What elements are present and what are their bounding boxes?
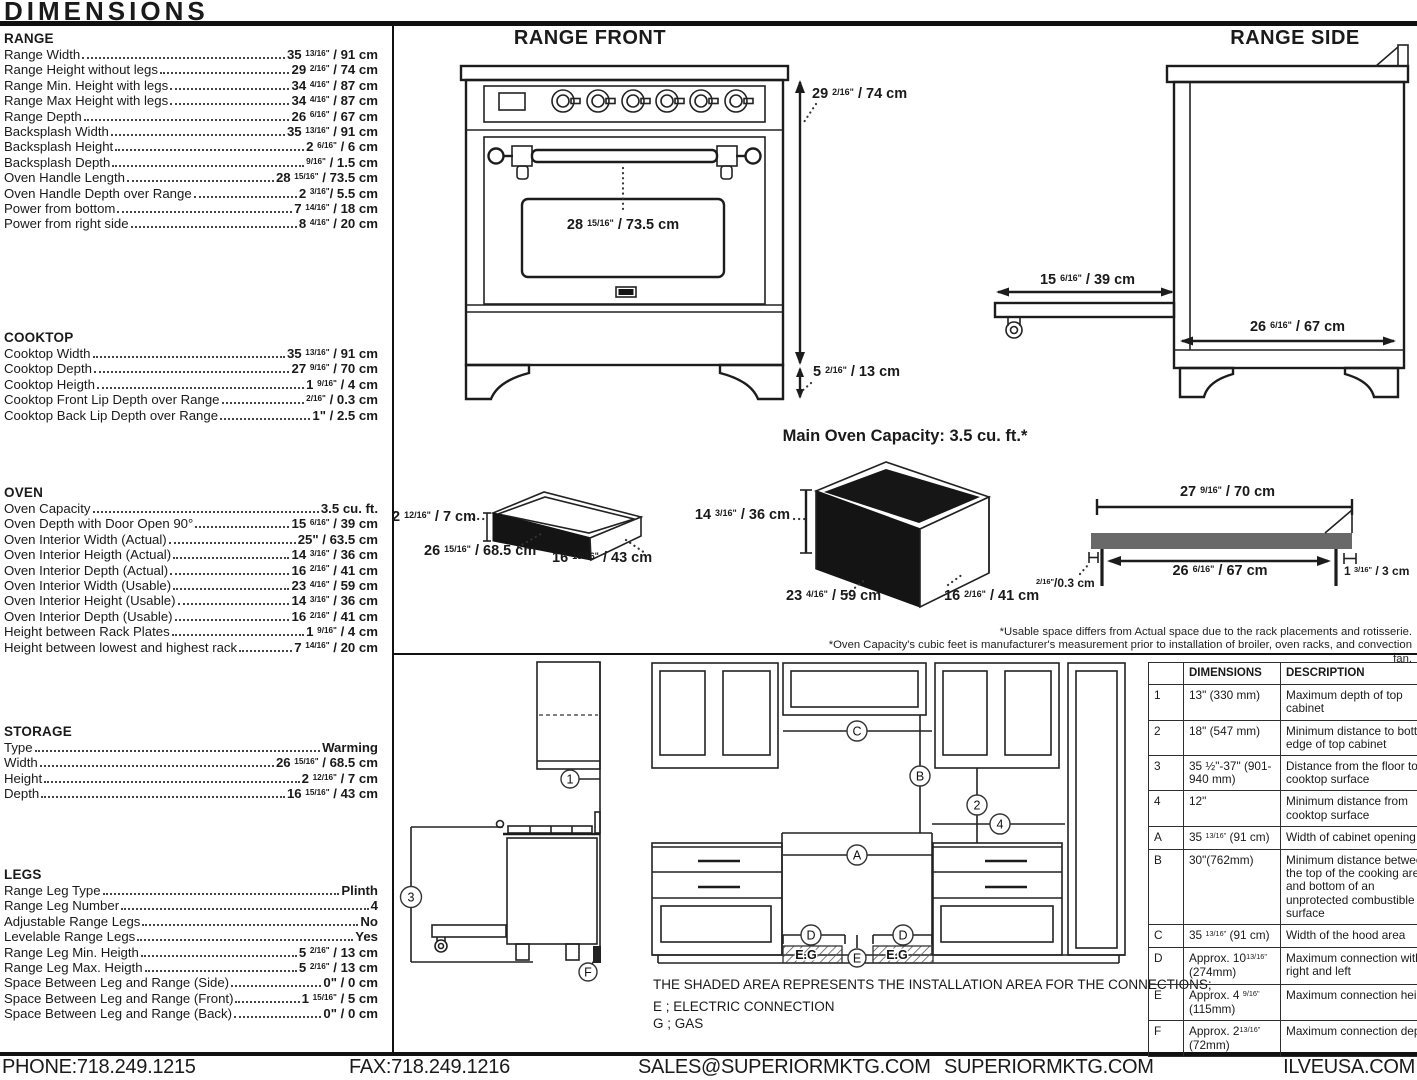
table-header-cell: DIMENSIONS (1184, 663, 1281, 685)
table-header-cell: DESCRIPTION (1281, 663, 1417, 685)
dim-leg-height: 5 2/16" / 13 cm (813, 364, 900, 380)
table-row: DApprox. 1013/16" (274mm)Maximum connect… (1149, 948, 1417, 984)
dim-drawer-depth: 16 15/16" / 43 cm (552, 550, 652, 566)
table-cell-description: Maximum connection depth (1281, 1021, 1417, 1057)
fraction: 2/16" (1036, 577, 1054, 586)
range-front-title: RANGE FRONT (440, 27, 740, 50)
install-table: DIMENSIONSDESCRIPTION 113" (330 mm)Maxim… (1148, 662, 1417, 1057)
install-elevation-drawing (652, 663, 1125, 967)
fraction: 13/16" (1246, 952, 1267, 961)
fraction: 9/16" (1243, 989, 1260, 998)
marker-1: 1 (567, 773, 574, 787)
table-cell-description: Maximum depth of top cabinet (1281, 685, 1417, 720)
table-cell-id: D (1149, 948, 1184, 984)
oven-capacity-title: Main Oven Capacity: 3.5 cu. ft.* (765, 427, 1045, 446)
marker-2: 2 (974, 799, 981, 813)
table-cell-dimensions: 35 ½"-37" (901-940 mm) (1184, 756, 1281, 791)
gas-note: G ; GAS (653, 1016, 703, 1031)
footer-sales-email: SALES@SUPERIORMKTG.COM (638, 1056, 931, 1079)
dim-oven-width: 23 4/16" / 59 cm (786, 588, 881, 604)
marker-3: 3 (408, 891, 415, 905)
fraction: 6/16" (1270, 320, 1292, 330)
install-table-head: DIMENSIONSDESCRIPTION (1149, 663, 1417, 685)
table-cell-description: Width of cabinet opening (1281, 826, 1417, 849)
table-cell-dimensions: Approx. 213/16" (72mm) (1184, 1021, 1281, 1057)
table-cell-id: 4 (1149, 791, 1184, 826)
table-row: C35 13/16" (91 cm)Width of the hood area (1149, 925, 1417, 948)
table-row: 335 ½"-37" (901-940 mm)Distance from the… (1149, 756, 1417, 791)
fraction: 13/16" (1205, 929, 1226, 938)
control-knobs (552, 90, 753, 112)
table-cell-description: Width of the hood area (1281, 925, 1417, 948)
fraction: 2/16" (832, 87, 854, 97)
table-cell-dimensions: 35 13/16" (91 cm) (1184, 826, 1281, 849)
install-side-view-drawing (401, 662, 602, 981)
range-side-drawing (995, 45, 1408, 397)
table-cell-description: Maximum connection height (1281, 984, 1417, 1020)
footer-site-ilveusa: ILVEUSA.COM (1283, 1056, 1415, 1079)
fraction: 2/16" (825, 365, 847, 375)
table-cell-id: 2 (1149, 720, 1184, 755)
oven-capacity-box-drawing (794, 462, 989, 607)
fraction: 12/16" (404, 510, 431, 520)
dim-door-open: 15 6/16" / 39 cm (1000, 272, 1175, 288)
table-row: FApprox. 213/16" (72mm)Maximum connectio… (1149, 1021, 1417, 1057)
table-row: EApprox. 4 9/16" (115mm)Maximum connecti… (1149, 984, 1417, 1020)
electric-note: E ; ELECTRIC CONNECTION (653, 999, 835, 1014)
fraction: 3/16" (1354, 565, 1372, 574)
table-row: A35 13/16" (91 cm)Width of cabinet openi… (1149, 826, 1417, 849)
fraction: 15/16" (572, 551, 599, 561)
marker-B: B (916, 770, 924, 784)
display-panel (499, 93, 525, 110)
eg-label-left: E.G (795, 948, 817, 962)
dim-drawer-width: 26 15/16" / 68.5 cm (424, 543, 536, 559)
table-header-row: DIMENSIONSDESCRIPTION (1149, 663, 1417, 685)
fraction: 3/16" (715, 508, 737, 518)
dim-front-lip: 2/16"/0.3 cm (1036, 576, 1095, 590)
fraction: 13/16" (1205, 831, 1226, 840)
table-cell-id: C (1149, 925, 1184, 948)
table-cell-dimensions: Approx. 1013/16" (274mm) (1184, 948, 1281, 984)
footer-fax: FAX:718.249.1216 (349, 1056, 510, 1079)
fraction: 13/16" (1240, 1025, 1261, 1034)
table-cell-dimensions: 12" (1184, 791, 1281, 826)
table-header-cell (1149, 663, 1184, 685)
dim-range-height: 29 2/16" / 74 cm (812, 86, 907, 102)
table-cell-dimensions: 35 13/16" (91 cm) (1184, 925, 1281, 948)
table-cell-description: Minimum distance between the top of the … (1281, 850, 1417, 925)
marker-E: E (853, 952, 861, 966)
table-cell-id: 3 (1149, 756, 1184, 791)
table-cell-id: A (1149, 826, 1184, 849)
table-cell-id: F (1149, 1021, 1184, 1057)
marker-D-left: D (806, 929, 815, 943)
table-cell-id: E (1149, 984, 1184, 1020)
fraction: 15/16" (444, 544, 471, 554)
fraction: 4/16" (806, 589, 828, 599)
shaded-area-note: THE SHADED AREA REPRESENTS THE INSTALLAT… (653, 977, 1212, 992)
fraction: 9/16" (1200, 485, 1222, 495)
dim-drawer-height: 2 12/16" / 7 cm (346, 509, 476, 525)
marker-C: C (852, 725, 861, 739)
dim-oven-height: 14 3/16" / 36 cm (660, 507, 790, 523)
table-cell-dimensions: 13" (330 mm) (1184, 685, 1281, 720)
footnote-usable: *Usable space differs from Actual space … (812, 626, 1412, 639)
dim-range-depth: 26 6/16" / 67 cm (1210, 319, 1385, 335)
oven-window (522, 199, 724, 277)
table-cell-id: B (1149, 850, 1184, 925)
dimensions-sheet: DIMENSIONS RANGERange Width35 13/16" / 9… (0, 0, 1417, 1080)
dim-cooktop-inner: 26 6/16" / 67 cm (1130, 563, 1310, 579)
table-cell-id: 1 (1149, 685, 1184, 720)
marker-D-right: D (898, 929, 907, 943)
table-row: B30"(762mm)Minimum distance between the … (1149, 850, 1417, 925)
fraction: 6/16" (1060, 273, 1082, 283)
marker-A: A (853, 849, 862, 863)
range-side-title: RANGE SIDE (1145, 27, 1417, 50)
table-cell-description: Maximum connection with right and left (1281, 948, 1417, 984)
marker-4: 4 (997, 818, 1004, 832)
dim-cooktop-top: 27 9/16" / 70 cm (1140, 484, 1315, 500)
dim-back-lip: 1 3/16" / 3 cm (1344, 564, 1409, 578)
table-row: 218" (547 mm)Minimum distance to bottom … (1149, 720, 1417, 755)
oven-handle (489, 146, 761, 179)
footer-site-superiormktg: SUPERIORMKTG.COM (944, 1056, 1154, 1079)
install-table-body: 113" (330 mm)Maximum depth of top cabine… (1149, 685, 1417, 1057)
footer-phone: PHONE:718.249.1215 (2, 1056, 196, 1079)
table-cell-dimensions: 18" (547 mm) (1184, 720, 1281, 755)
fraction: 6/16" (1193, 564, 1215, 574)
dim-handle-length: 28 15/16" / 73.5 cm (523, 217, 723, 233)
table-row: 113" (330 mm)Maximum depth of top cabine… (1149, 685, 1417, 720)
table-cell-dimensions: Approx. 4 9/16" (115mm) (1184, 984, 1281, 1020)
eg-label-right: E.G (886, 948, 908, 962)
table-cell-description: Distance from the floor to cooktop surfa… (1281, 756, 1417, 791)
fraction: 2/16" (964, 589, 986, 599)
open-door-shelf (995, 303, 1174, 338)
table-row: 412"Minimum distance from cooktop surfac… (1149, 791, 1417, 826)
table-cell-description: Minimum distance to bottom edge of top c… (1281, 720, 1417, 755)
table-cell-dimensions: 30"(762mm) (1184, 850, 1281, 925)
marker-F: F (584, 966, 592, 980)
capacity-footnotes: *Usable space differs from Actual space … (812, 626, 1412, 666)
table-cell-description: Minimum distance from cooktop surface (1281, 791, 1417, 826)
dim-oven-depth: 16 2/16" / 41 cm (944, 588, 1039, 604)
fraction: 15/16" (587, 218, 614, 228)
cooktop-slab (1091, 533, 1352, 549)
install-table-wrap: DIMENSIONSDESCRIPTION 113" (330 mm)Maxim… (1148, 662, 1414, 1057)
